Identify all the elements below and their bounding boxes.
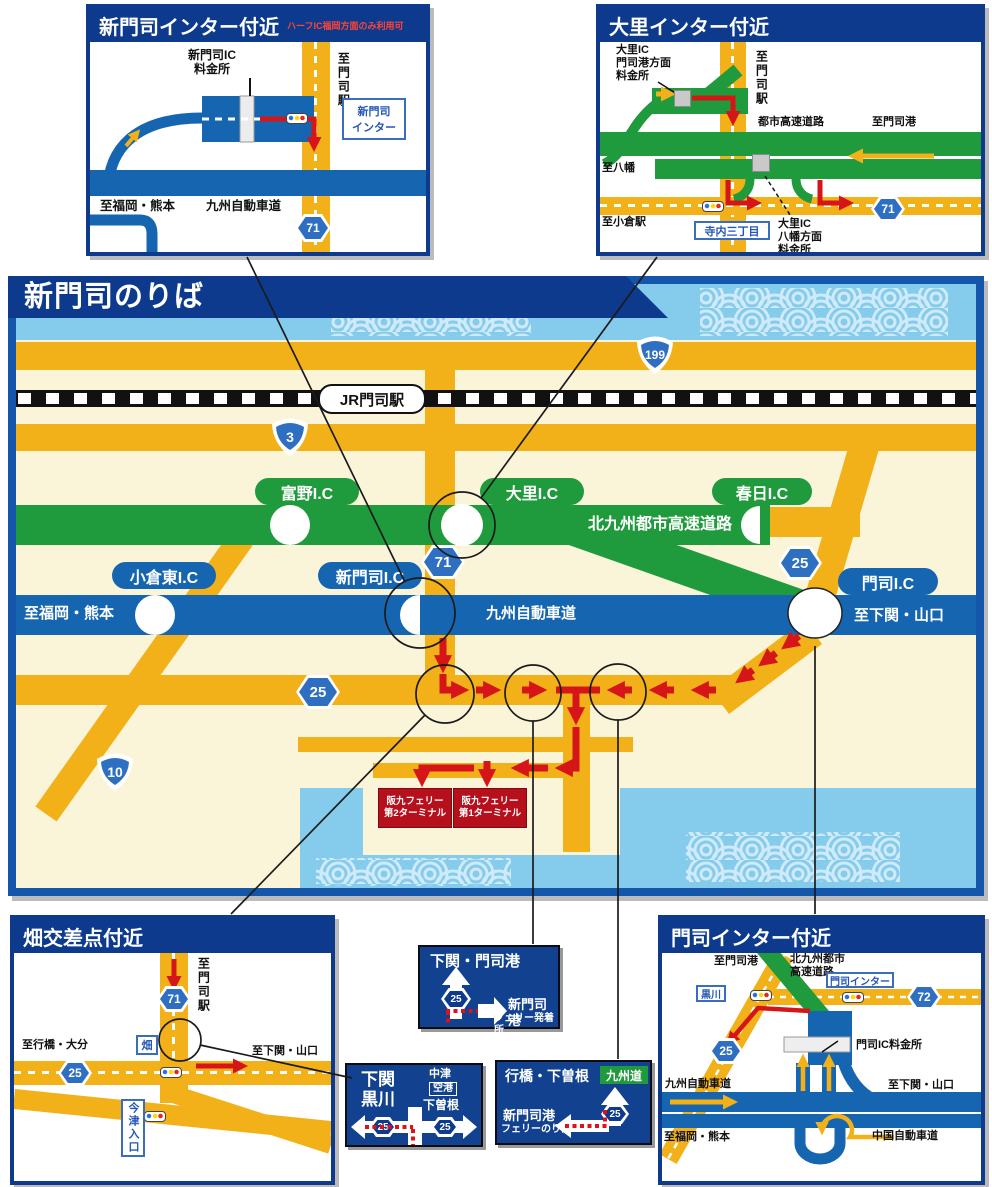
inset-shinmoji-ic: 新門司インター付近 ハーフIC福岡方面のみ利用可 新門司IC 料金所: [86, 4, 430, 256]
inset-moji-ic: 門司インター付近: [658, 915, 985, 1185]
inset-shinmoji-map: 新門司IC 料金所 至門司駅 新門司 インター 至福岡・熊本 九州自動車道 71: [90, 42, 426, 252]
tollgate-icon: [752, 154, 770, 172]
to-mojiko-label: 至門司港: [872, 116, 916, 129]
inset-hata-crossing: 畑交差点付近 至門司駅 71 畑 至行橋・大分 至下関・山口 25: [10, 915, 335, 1185]
inset-dairi-ic: 大里インター付近: [596, 4, 985, 256]
hata-sign: 畑: [136, 1035, 158, 1055]
urban-expressway-label: 都市高速道路: [758, 116, 824, 129]
ic-label-kasuga: 春日I.C: [712, 478, 812, 505]
road-sign-yukuhashi: 行橋・下曽根 九州道 25 新門司港 フェリーのりば: [495, 1060, 652, 1145]
route-dots: [411, 1129, 415, 1145]
ic-label-tomino: 富野I.C: [255, 478, 359, 505]
route-dots: [365, 1125, 413, 1129]
inset-shinmoji-header: 新門司インター付近 ハーフIC福岡方面のみ利用可: [90, 8, 426, 42]
route-arrows: [422, 636, 799, 780]
railway: [16, 390, 976, 407]
main-map: JR門司駅 199 3 10 71 25 25 富野I.C 大里I.C 春日I.…: [8, 276, 984, 896]
traffic-signal-icon: [750, 990, 772, 1001]
map-title-banner: 新門司のりば: [8, 276, 668, 318]
traffic-signal-icon: [144, 1111, 166, 1122]
inset-hata-title: 畑交差点付近: [23, 922, 143, 951]
inset-hata-header: 畑交差点付近: [14, 919, 331, 953]
expressway-label: 九州自動車道: [206, 199, 281, 214]
imazu-entrance-text: 今津入口: [125, 1102, 141, 1154]
to-shimonoseki-label: 至下関・山口: [252, 1045, 318, 1058]
main-map-inner: JR門司駅 199 3 10 71 25 25 富野I.C 大里I.C 春日I.…: [16, 284, 976, 888]
route-dots: [446, 1011, 450, 1023]
to-fukuoka-label: 至福岡・熊本: [24, 605, 114, 623]
route-dots: [446, 1009, 478, 1013]
to-fukuoka-label: 至福岡・熊本: [664, 1131, 730, 1144]
ic-label-shinmoji: 新門司I.C: [318, 562, 422, 589]
shinmoji-inter-sign: 新門司 インター: [342, 98, 406, 140]
to-kokura-label: 至小倉駅: [602, 216, 646, 229]
kyushu-expressway-label: 九州自動車道: [665, 1078, 731, 1091]
inset-shinmoji-subtitle: ハーフIC福岡方面のみ利用可: [287, 19, 403, 32]
sign-c-dest: 新門司港: [503, 1108, 555, 1124]
sign-a-dest2: フェリー発着所: [494, 1013, 558, 1037]
tollgate-icon: [674, 90, 691, 107]
imazu-entrance-sign: 今津入口: [121, 1099, 145, 1157]
to-yahata-label: 至八幡: [602, 162, 635, 175]
map-title: 新門司のりば: [8, 280, 204, 315]
ic-label-kokurahigashi: 小倉東I.C: [112, 562, 216, 589]
ferry-terminal-1: 阪九フェリー 第1ターミナル: [453, 788, 527, 828]
tollgate-moji-label: 大里IC 門司港方面 料金所: [616, 44, 671, 84]
to-station-label: 至門司駅: [754, 50, 768, 106]
traffic-signal-icon: [160, 1067, 182, 1078]
ferry-access-map: JR門司駅 199 3 10 71 25 25 富野I.C 大里I.C 春日I.…: [0, 0, 992, 1187]
inset-dairi-header: 大里インター付近: [600, 8, 981, 42]
to-shimonoseki-label: 至下関・山口: [854, 607, 944, 625]
inset-moji-header: 門司インター付近: [662, 919, 981, 953]
to-mojiko-label: 至門司港: [714, 955, 758, 968]
route-dots: [603, 1110, 607, 1124]
inset-dairi-title: 大里インター付近: [609, 11, 769, 40]
to-shimonoseki-label: 至下関・山口: [888, 1079, 954, 1092]
traffic-signal-icon: [842, 992, 864, 1003]
tollgate-label: 新門司IC 料金所: [188, 48, 236, 77]
wave-pattern: [316, 858, 511, 886]
urban-expressway-label: 北九州都市高速道路: [588, 515, 732, 534]
wave-pattern: [700, 288, 948, 336]
inset-hata-map: 至門司駅 71 畑 至行橋・大分 至下関・山口 25 今津入口: [14, 953, 331, 1181]
ferry-terminal-2: 阪九フェリー 第2ターミナル: [378, 788, 452, 828]
route-dots: [565, 1124, 607, 1128]
inset-moji-map: 至門司港 北九州都市 高速道路 黒川 門司インター 72 25 門司IC料金所 …: [662, 953, 981, 1181]
to-fukuoka-label: 至福岡・熊本: [100, 199, 175, 214]
road-sign-shimonoseki-mojiko: 下関・門司港 25 新門司港 フェリー発着所: [418, 945, 560, 1029]
to-station-label: 至門司駅: [196, 957, 210, 1013]
traffic-signal-icon: [702, 201, 724, 212]
inset-moji-title: 門司インター付近: [671, 922, 831, 951]
wave-pattern: [686, 832, 900, 882]
moji-tollgate-label: 門司IC料金所: [856, 1039, 922, 1052]
inset-dairi-map: 大里IC 門司港方面 料金所 至門司駅 都市高速道路 至門司港 至八幡 至小倉駅…: [600, 42, 981, 252]
jr-station-label: JR門司駅: [318, 384, 426, 414]
kyushu-expressway-inset-road: [90, 170, 426, 196]
kurokawa-sign: 黒川: [696, 985, 726, 1002]
ic-label-dairi: 大里I.C: [480, 478, 584, 505]
chugoku-expressway-label: 中国自動車道: [872, 1130, 938, 1143]
traffic-signal-icon: [286, 113, 308, 124]
sign-c-dest2: フェリーのりば: [501, 1124, 571, 1136]
moji-inter-sign: 門司インター: [826, 972, 894, 988]
terauchi-sign: 寺内三丁目: [694, 221, 770, 240]
tollgate-yahata-label: 大里IC 八幡方面 料金所: [778, 218, 822, 252]
kyushu-expressway-label: 九州自動車道: [486, 605, 576, 623]
to-yukuhashi-label: 至行橋・大分: [22, 1039, 88, 1052]
road-sign-kurokawa-junction: 下関 黒川 中津 空港 下曽根 25 25: [345, 1063, 483, 1147]
inset-shinmoji-shapes: [90, 42, 426, 252]
ic-label-moji: 門司I.C: [838, 568, 938, 595]
inset-shinmoji-title: 新門司インター付近: [99, 11, 279, 40]
